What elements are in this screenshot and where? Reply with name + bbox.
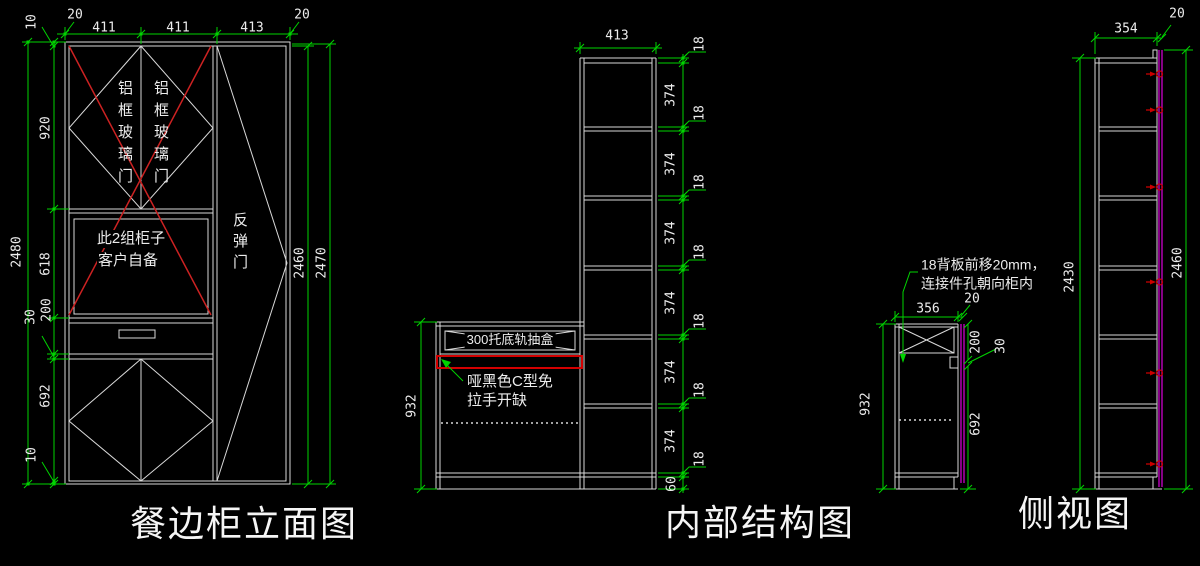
chain-dim-374-6: 374: [665, 429, 678, 452]
red-cross-mark: [69, 46, 211, 315]
middle-niche-note-line2: 客户自备: [97, 252, 159, 270]
handle-cutout-highlight-box: [437, 356, 582, 368]
elev-dim-drawer: 200: [41, 298, 54, 321]
cad-cabinet-drawing: 20 411 411 413 20 10 920 2480 618 200 30…: [0, 0, 1200, 566]
glass-door-label-left: 铝框玻璃门: [117, 80, 132, 190]
elev-dim-glass: 920: [40, 116, 53, 139]
side-detail-drawer-cross-box: [899, 327, 954, 353]
side-detail-structure: [895, 324, 958, 489]
elev-dim-strip: 30: [25, 309, 38, 325]
elev-dim-total: 2480: [11, 236, 24, 267]
elev-dim-bottom-door: 692: [40, 384, 53, 407]
back-panel-note-arrowhead: [900, 354, 906, 363]
detail-dim-left: 932: [860, 392, 873, 415]
elevation-title: 餐边柜立面图: [130, 506, 358, 542]
detail-dim-drawer: 200: [970, 330, 983, 353]
elev-dim-col1: 411: [92, 22, 115, 35]
back-panel-note-line1: 18背板前移20mm，: [920, 257, 1046, 274]
glass-door-label-right: 铝框玻璃门: [153, 80, 168, 190]
internal-title: 内部结构图: [665, 505, 855, 541]
side-view-shelves: [1099, 127, 1157, 408]
elev-dim-col2: 411: [166, 22, 189, 35]
side-detail-back-panel: [961, 324, 964, 483]
internal-structure: [436, 58, 656, 489]
back-panel-note-line2: 连接件孔朝向柜内: [920, 276, 1034, 293]
spring-door-label: 反弹门: [232, 212, 247, 275]
chain-dim-18-6: 18: [694, 382, 707, 398]
chain-dim-374-1: 374: [665, 83, 678, 106]
internal-dim-top: 413: [605, 30, 628, 43]
chain-dim-60: 60: [666, 476, 679, 492]
handle-note-line2: 拉手开缺: [466, 392, 528, 410]
side-dim-top: 354: [1114, 23, 1137, 36]
side-view-structure: [1095, 50, 1162, 489]
tall-cabinet-shelves: [584, 127, 652, 408]
detail-dim-back-gap: 20: [964, 293, 980, 306]
side-detail-carcass: [895, 324, 958, 489]
side-view-title: 侧视图: [1018, 496, 1132, 532]
internal-dim-ticks: [417, 44, 687, 493]
chain-dim-374-3: 374: [665, 221, 678, 244]
chain-dim-18-7: 18: [694, 451, 707, 467]
spring-door-swing-lines: [217, 46, 287, 481]
middle-niche-note-line1: 此2组柜子: [96, 230, 166, 248]
cabinet-bottom-base: [436, 473, 656, 489]
side-dim-left: 2430: [1064, 261, 1077, 292]
chain-dim-18-4: 18: [694, 244, 707, 260]
detail-dim-door: 692: [970, 412, 983, 435]
chain-dim-374-5: 374: [665, 360, 678, 383]
detail-dim-notch: 30: [995, 338, 1008, 354]
elev-dim-bottom-panel: 10: [26, 447, 39, 463]
detail-dim-top: 356: [916, 303, 939, 316]
elev-dim-right-inner: 2460: [294, 247, 307, 278]
chain-dim-18-1: 18: [694, 36, 707, 52]
handle-note-arrowhead: [441, 359, 451, 368]
drawer-box-label: 300托底轨抽盒: [465, 332, 556, 348]
elev-dim-top-gap-left: 20: [67, 9, 83, 22]
side-view-back-panel: [1159, 50, 1162, 487]
side-dim-back-gap: 20: [1169, 8, 1185, 21]
chain-dim-18-3: 18: [694, 174, 707, 190]
tall-cabinet-carcass: [580, 58, 656, 489]
elev-dim-middle: 618: [40, 252, 53, 275]
internal-dim-left: 932: [406, 394, 419, 417]
elev-dim-top-panel: 10: [26, 14, 39, 30]
elev-dim-top-gap-right: 20: [294, 9, 310, 22]
chain-dim-18-2: 18: [694, 105, 707, 121]
handle-cutout-notch: [950, 357, 958, 368]
side-dim-right: 2460: [1172, 247, 1185, 278]
internal-dimensions: [414, 42, 706, 493]
chain-dim-374-2: 374: [665, 152, 678, 175]
side-view-base: [1095, 473, 1162, 489]
chain-dim-18-5: 18: [694, 313, 707, 329]
elev-dim-right-outer: 2470: [316, 247, 329, 278]
handle-note-line1: 哑黑色C型免: [466, 373, 554, 391]
chain-dim-374-4: 374: [665, 291, 678, 314]
drawer-handle: [119, 330, 155, 338]
elev-dim-col3: 413: [240, 22, 263, 35]
